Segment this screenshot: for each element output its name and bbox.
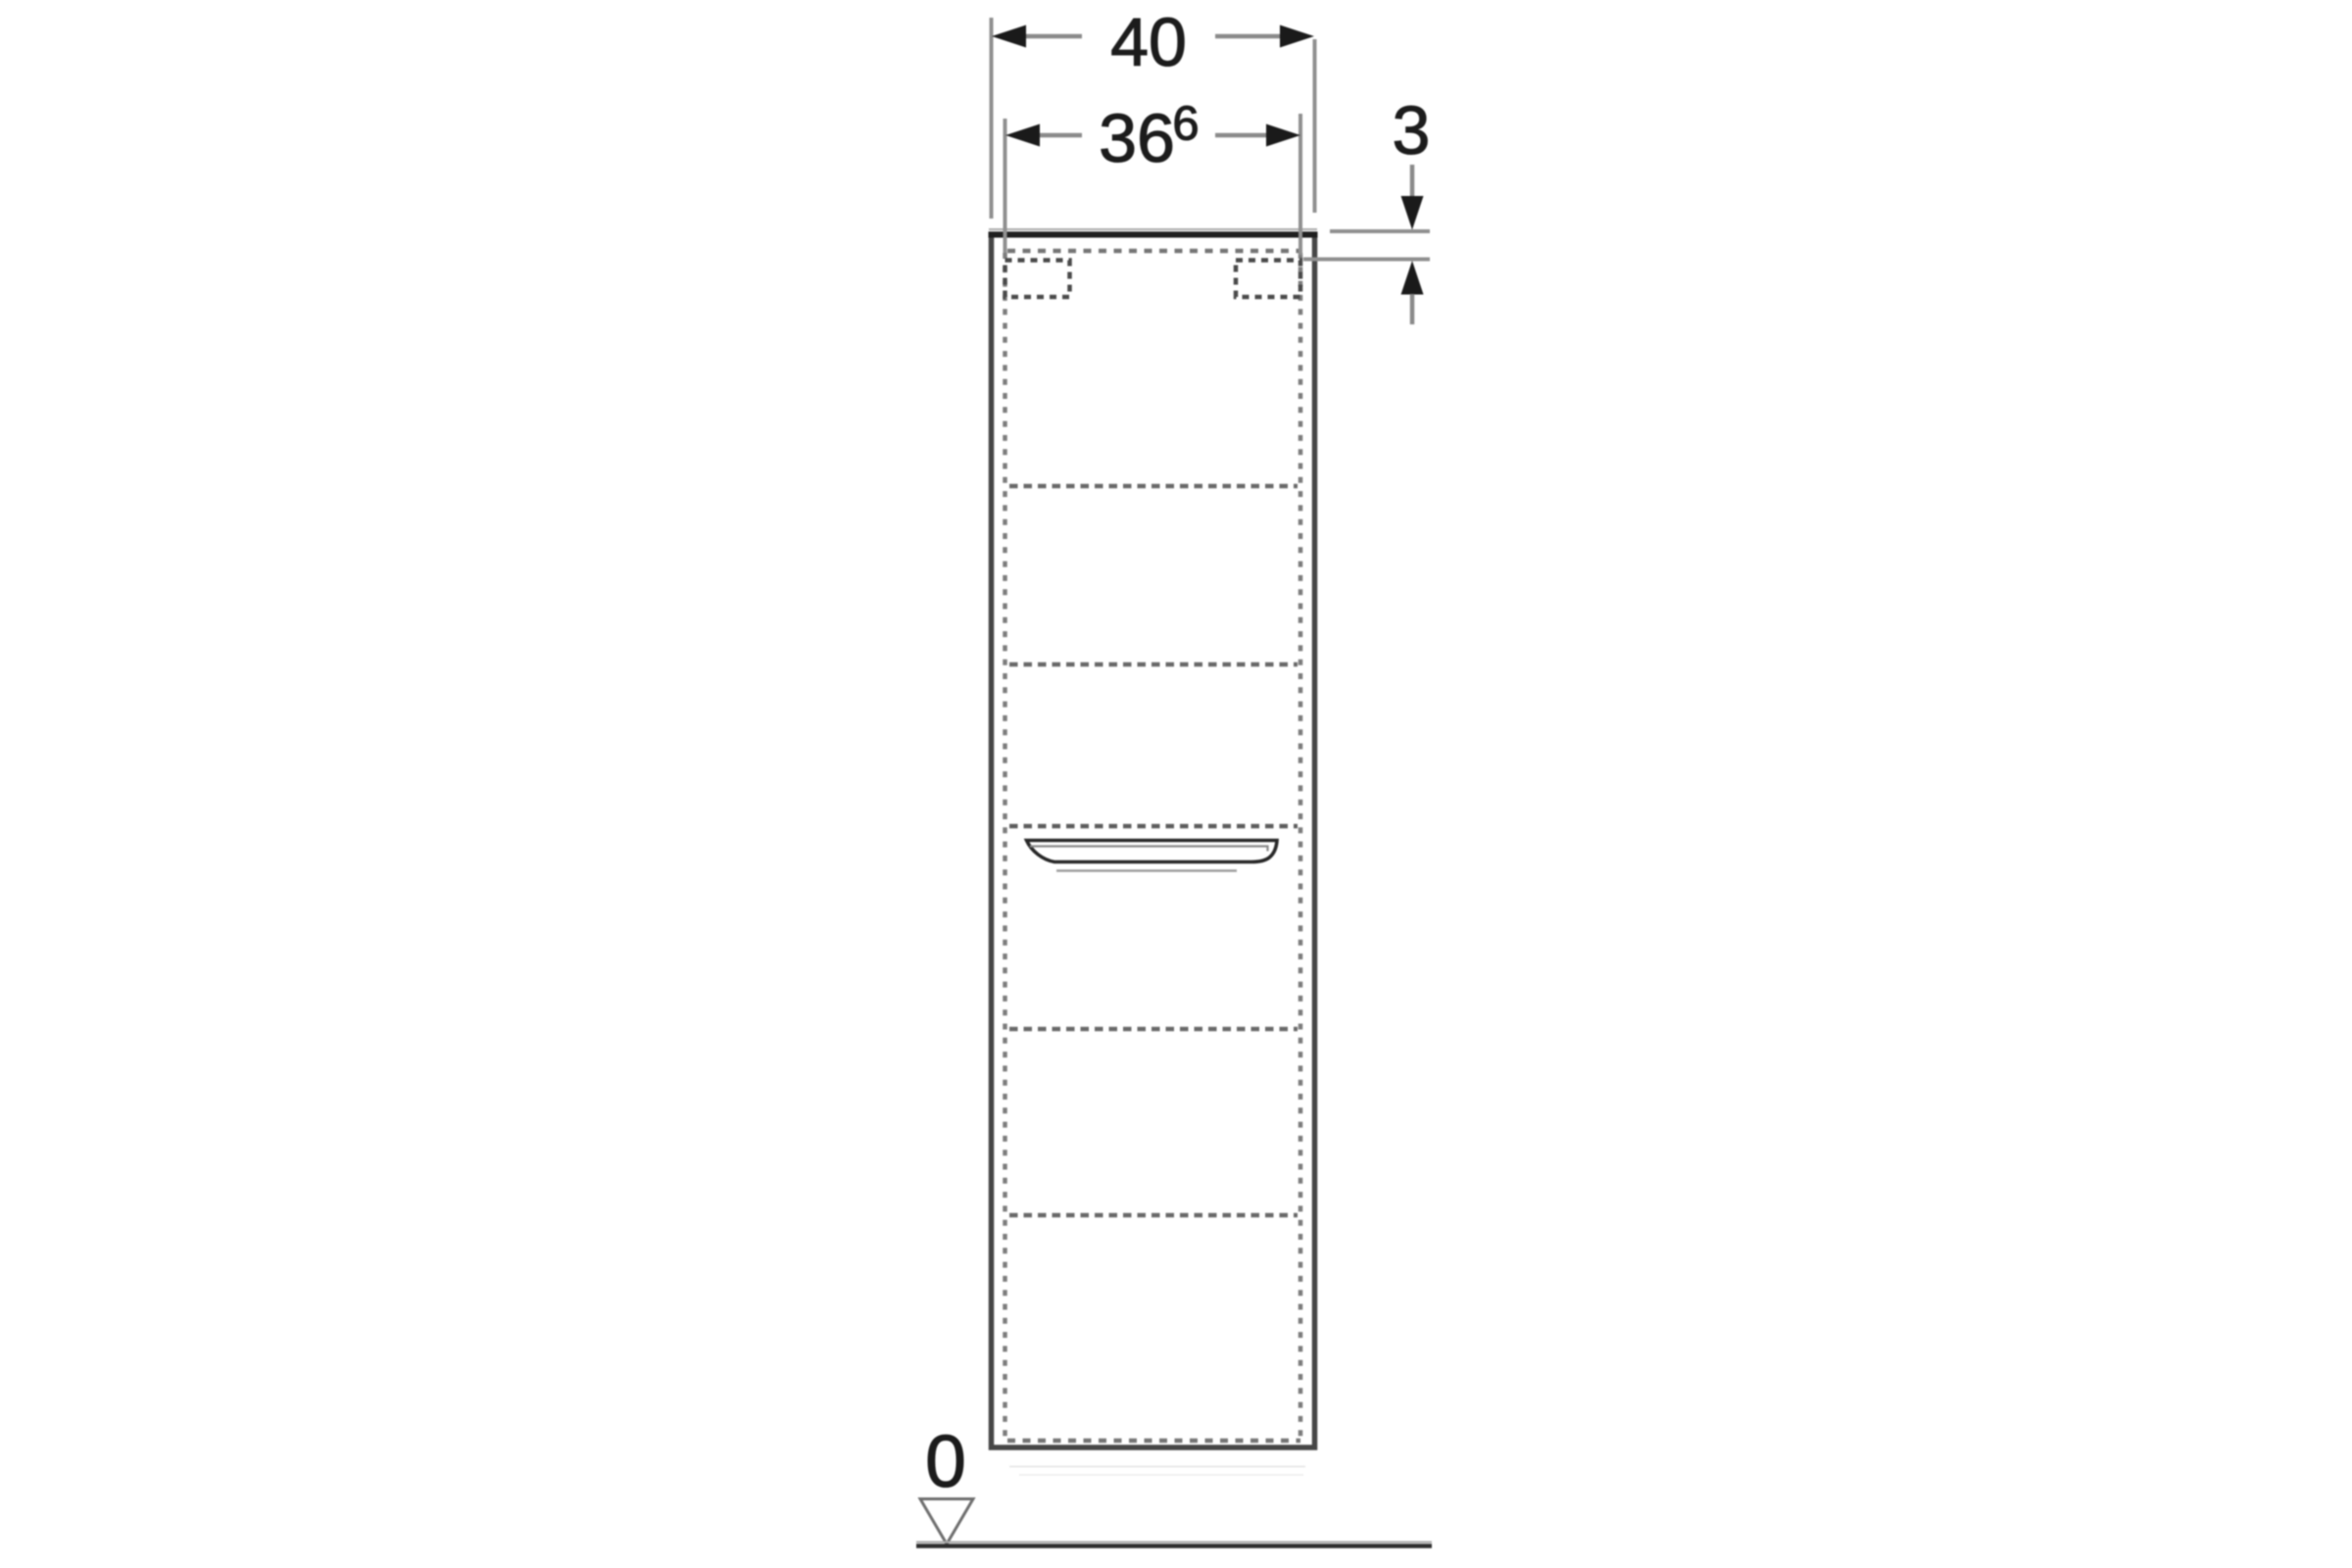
- svg-text:40: 40: [1110, 4, 1187, 80]
- svg-text:3: 3: [1393, 92, 1431, 169]
- svg-text:6: 6: [1172, 98, 1199, 151]
- svg-text:36: 36: [1099, 100, 1175, 176]
- svg-text:0: 0: [925, 1420, 966, 1502]
